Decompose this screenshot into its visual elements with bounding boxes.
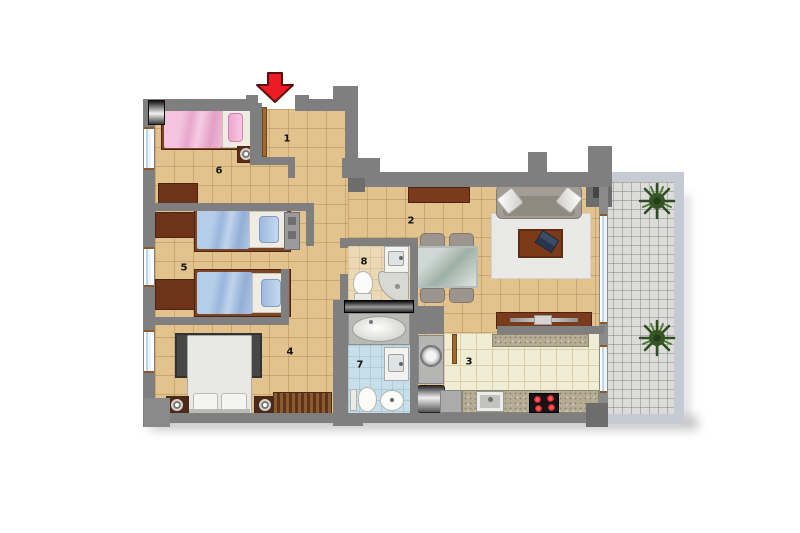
faucet: [399, 362, 403, 366]
dining-chair: [449, 288, 474, 303]
room-label-7: 7: [357, 360, 364, 371]
dishwasher: [440, 390, 462, 413]
pink-bed-pillow: [228, 113, 243, 142]
room-label-4: 4: [287, 347, 294, 358]
washing-machine-drum: [420, 345, 442, 367]
table-lamp: [259, 399, 271, 411]
wall: [306, 211, 314, 246]
desk: [158, 183, 198, 204]
toilet: [358, 387, 377, 412]
column: [588, 146, 612, 173]
tv-base: [534, 315, 552, 325]
wall: [345, 103, 358, 160]
plant-icon: [635, 316, 679, 360]
wall: [146, 413, 608, 423]
sink-faucet: [488, 397, 493, 402]
bathtub-drain: [369, 320, 373, 324]
burner: [535, 405, 542, 412]
window: [144, 247, 154, 287]
room-label-6: 6: [216, 166, 223, 177]
kitchen-window: [600, 345, 607, 393]
single-bed-duvet: [197, 272, 252, 314]
pink-bed-duvet: [164, 107, 222, 148]
toilet-tank: [350, 389, 357, 411]
faucet: [399, 256, 403, 260]
wardrobe-handle: [288, 231, 296, 239]
shower-drain: [395, 284, 400, 289]
entrance-arrow-icon: [255, 72, 295, 104]
wall: [333, 413, 363, 426]
terrace-wall-bottom: [604, 414, 684, 424]
cooktop: [529, 393, 559, 413]
room-label-1: 1: [284, 134, 291, 145]
breakfast-bar: [492, 334, 589, 347]
plant-icon: [635, 179, 679, 223]
floor-plan: 1 2 3 4 5 6 7 8: [0, 0, 800, 533]
bathtub: [352, 316, 406, 342]
toilet: [353, 271, 373, 295]
single-bed-pillow: [261, 279, 281, 307]
burner: [548, 404, 555, 411]
column: [528, 152, 547, 173]
bidet-faucet: [390, 398, 394, 402]
wall: [144, 398, 170, 427]
bench-rug: [273, 392, 332, 414]
wall: [250, 157, 295, 165]
window: [144, 330, 154, 373]
wall: [586, 403, 608, 427]
sideboard: [408, 187, 470, 203]
burner: [534, 396, 541, 403]
room-label-2: 2: [408, 216, 415, 227]
column: [348, 178, 365, 192]
wall: [340, 238, 418, 246]
kitchen-door-leaf: [452, 334, 457, 364]
dining-chair: [420, 288, 445, 303]
wardrobe-handle: [288, 217, 296, 225]
wall: [352, 172, 612, 187]
dresser: [155, 212, 196, 238]
wall: [410, 326, 444, 334]
glass-door: [600, 214, 607, 324]
dining-table: [416, 246, 478, 288]
single-bed-pillow: [259, 216, 279, 243]
wall: [497, 326, 604, 334]
burner: [547, 395, 554, 402]
wall: [155, 203, 314, 211]
entrance-door-leaf: [262, 107, 267, 157]
glass-partition: [344, 300, 414, 313]
dresser: [155, 279, 196, 310]
wall: [155, 317, 289, 325]
wall: [340, 238, 348, 248]
window: [144, 127, 154, 170]
wall: [250, 103, 262, 159]
single-bed-duvet: [197, 210, 249, 249]
table-lamp: [171, 399, 183, 411]
room-label-3: 3: [466, 357, 473, 368]
wall: [340, 274, 348, 413]
wall: [288, 165, 295, 178]
radiator: [148, 100, 165, 125]
room-label-8: 8: [361, 257, 368, 268]
room-label-5: 5: [181, 263, 188, 274]
